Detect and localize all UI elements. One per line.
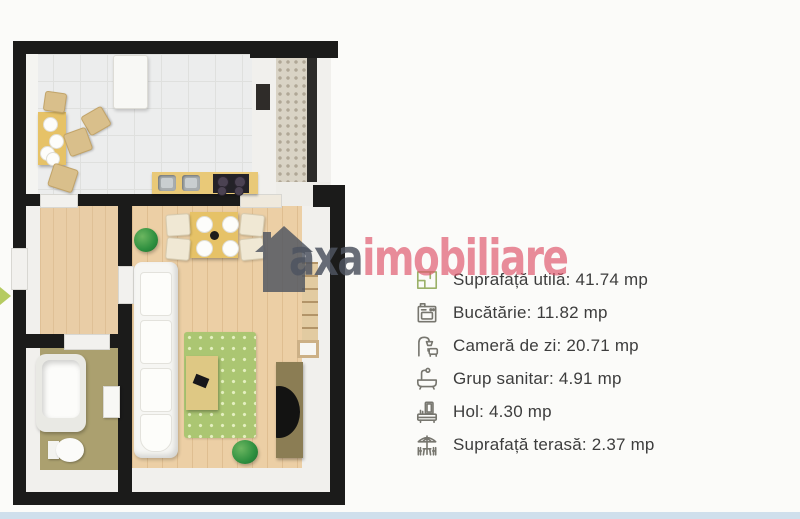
table-centerpiece [210,231,219,240]
coffee-table-desk [186,356,218,410]
legend-row-terrace: Suprafață terasă: 2.37 mp [413,435,655,455]
legend-label: Hol: [453,402,484,421]
legend-row-bathroom: Grup sanitar: 4.91 mp [413,369,655,389]
kitchen-counter [152,172,258,194]
hall-living-door [118,266,134,304]
legend-text: Bucătărie: 11.82 mp [453,303,608,323]
legend-text: Cameră de zi: 20.71 mp [453,336,639,356]
wall-top-terrace [250,41,338,58]
bathroom-sink [103,386,120,418]
bathroom-door [64,334,110,350]
living-chair [165,237,191,261]
kitchen-chair [43,91,68,114]
plate [43,117,58,132]
bathtub [36,354,86,432]
dresser-mirror-icon [413,399,440,426]
legend-text: Hol: 4.30 mp [453,402,552,422]
plate [222,240,239,257]
terrace-door-frame [256,84,270,110]
fridge [113,55,148,109]
gallery-next-arrow[interactable] [0,287,11,305]
legend-text: Suprafață terasă: 2.37 mp [453,435,655,455]
wall-hall-living-divider [118,206,132,492]
sofa-cushion [140,272,172,316]
toilet [56,438,84,462]
kitchen-living-opening [240,194,282,208]
legend-value: 4.91 mp [559,369,622,388]
living-chair [165,213,190,237]
hall-left-wall-face [26,206,40,334]
bathtub-basin [42,360,80,418]
legend-row-living: Cameră de zi: 20.71 mp [413,336,655,356]
living-chair [239,237,265,261]
tv-speaker [276,386,300,438]
real-estate-listing-image: Suprafață utilă: 41.74 mp Bucătărie: 11.… [0,0,800,519]
wall-right [330,185,345,505]
lamp-armchair-icon [413,333,440,360]
stove-icon [413,300,440,327]
legend-value: 11.82 mp [536,303,607,322]
burner [234,186,244,196]
bottom-strip [0,512,800,519]
bathtub-icon [413,366,440,393]
plant [232,440,258,464]
kitchen-sink [158,175,176,191]
legend-row-usable-area: Suprafață utilă: 41.74 mp [413,270,655,290]
sofa-cushion [140,368,172,412]
floor-plan [0,0,360,519]
plate [196,216,213,233]
hallway-room [40,206,118,334]
living-chair [239,213,265,237]
legend-row-hall: Hol: 4.30 mp [413,402,655,422]
plate [222,216,239,233]
legend-text: Grup sanitar: 4.91 mp [453,369,622,389]
terrace-umbrella-icon [413,432,440,459]
wall-frame [297,340,319,358]
legend-value: 2.37 mp [592,435,655,454]
burner [217,186,227,196]
kitchen-left-wall-face [26,54,38,194]
legend-label: Cameră de zi: [453,336,561,355]
floorplan-icon [413,267,440,294]
legend-value: 4.30 mp [489,402,552,421]
legend-row-kitchen: Bucătărie: 11.82 mp [413,303,655,323]
tv-stand [276,362,303,458]
sofa-cushion [140,320,172,364]
bath-bottom-wall-face [40,470,118,492]
terrace-railing [307,58,317,185]
laptop [193,374,210,389]
legend-value: 20.71 mp [566,336,638,355]
kitchen-hall-door [40,194,78,208]
legend-label: Suprafață utilă: [453,270,571,289]
legend-label: Suprafață terasă: [453,435,587,454]
sofa [134,262,178,458]
wall-bottom [13,492,345,505]
stove-cooktop [213,174,249,193]
legend-text: Suprafață utilă: 41.74 mp [453,270,648,290]
terrace-outer-edge [317,58,331,185]
plate [196,240,213,257]
living-bottom-wall-face [132,468,330,492]
entrance-door [11,248,28,290]
kitchen-sink [182,175,200,191]
legend-label: Grup sanitar: [453,369,554,388]
legend-value: 41.74 mp [576,270,648,289]
legend-label: Bucătărie: [453,303,532,322]
wall-terrace-corner [313,185,340,207]
terrace [276,58,307,184]
living-dining-table [190,212,238,258]
area-legend: Suprafață utilă: 41.74 mp Bucătărie: 11.… [413,270,655,455]
kitchen-table [38,112,66,165]
plant [134,228,158,252]
sofa-cushion [140,414,172,452]
